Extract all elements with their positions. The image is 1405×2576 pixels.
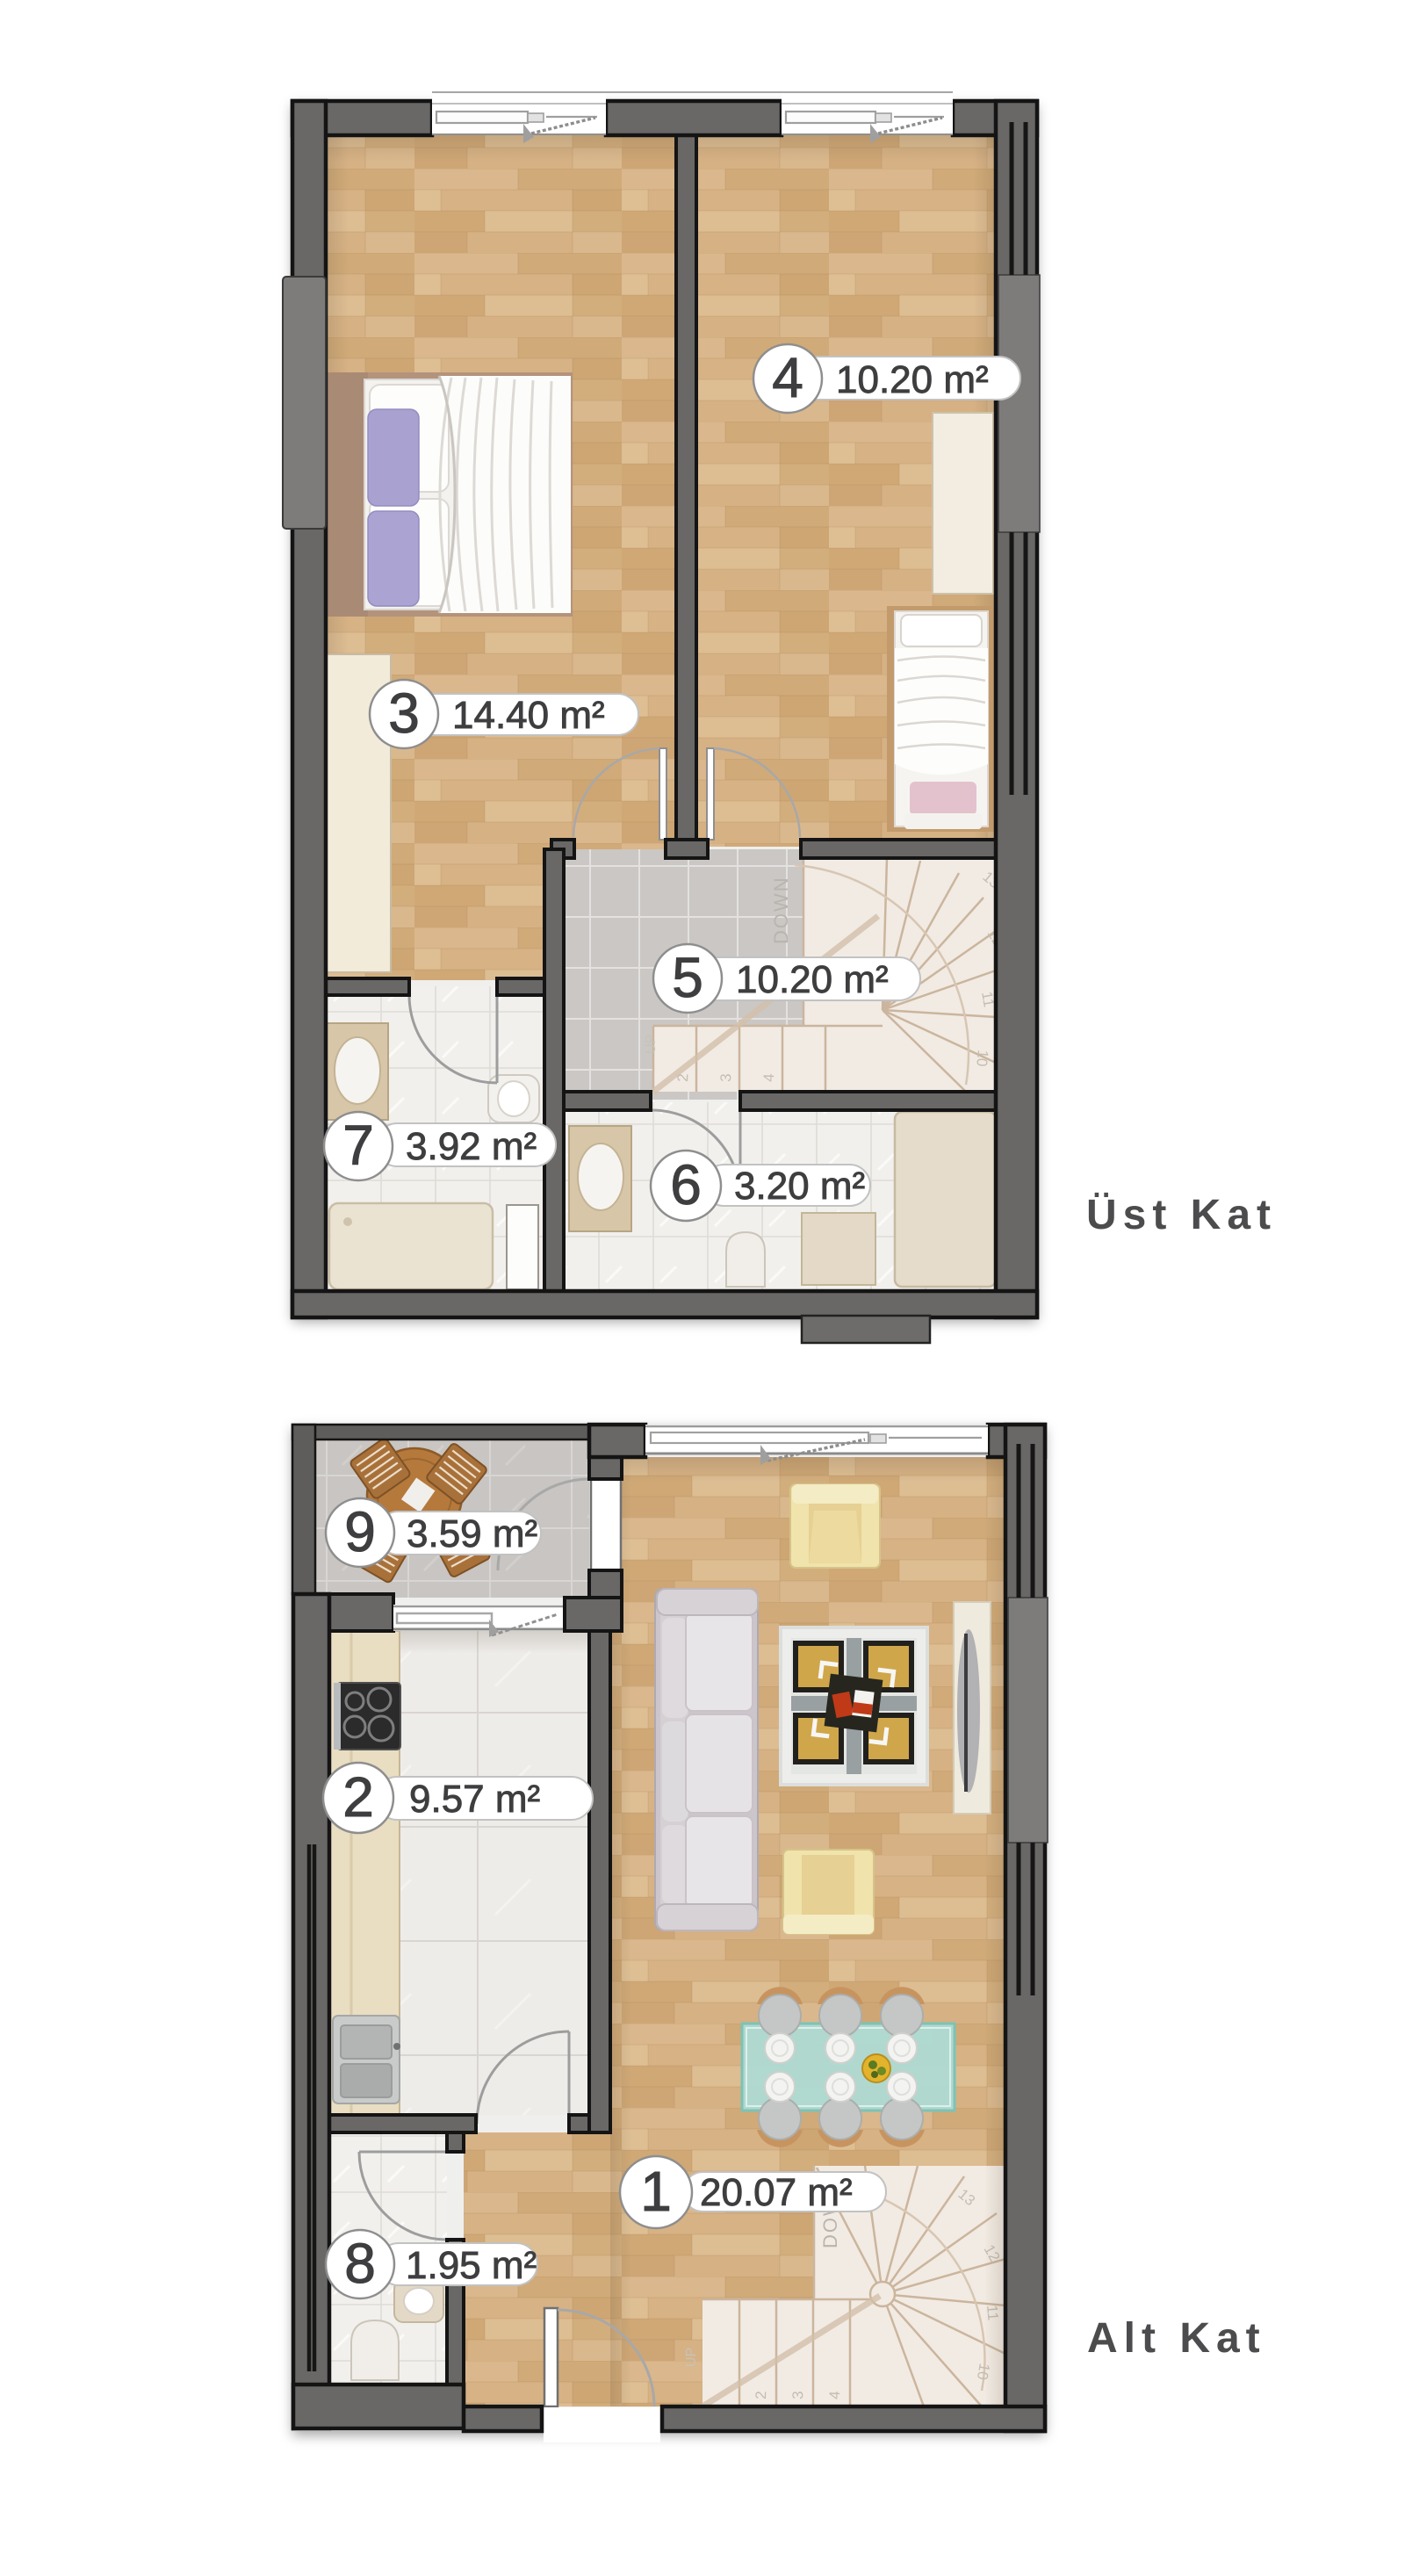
svg-text:10.20 m²: 10.20 m² [736, 958, 889, 1001]
svg-text:3: 3 [388, 682, 420, 745]
svg-text:4: 4 [772, 346, 803, 409]
svg-text:14.40 m²: 14.40 m² [452, 694, 605, 737]
svg-text:5: 5 [672, 946, 703, 1009]
svg-text:UP: UP [644, 1035, 659, 1054]
svg-text:UP: UP [684, 2348, 699, 2367]
svg-text:3.59 m²: 3.59 m² [407, 1512, 537, 1555]
svg-text:9: 9 [344, 1500, 376, 1563]
svg-text:3.92 m²: 3.92 m² [406, 1125, 537, 1168]
svg-text:6: 6 [670, 1153, 702, 1216]
svg-text:DOWN: DOWN [770, 876, 792, 944]
svg-text:7: 7 [342, 1114, 374, 1177]
svg-text:10.20 m²: 10.20 m² [836, 358, 989, 401]
svg-text:2: 2 [674, 1073, 691, 1082]
svg-text:8: 8 [344, 2232, 376, 2295]
svg-text:3: 3 [789, 2391, 806, 2399]
svg-text:1.95 m²: 1.95 m² [406, 2244, 537, 2287]
svg-text:2: 2 [753, 2391, 769, 2399]
svg-text:4: 4 [760, 1073, 777, 1082]
svg-text:10: 10 [973, 1050, 991, 1068]
svg-text:4: 4 [826, 2391, 843, 2399]
svg-text:20.07 m²: 20.07 m² [700, 2171, 853, 2214]
svg-text:3: 3 [717, 1073, 734, 1082]
svg-text:2: 2 [342, 1765, 374, 1829]
svg-text:Üst Kat: Üst Kat [1086, 1192, 1277, 1238]
svg-text:3.20 m²: 3.20 m² [734, 1165, 865, 1208]
svg-text:Alt Kat: Alt Kat [1087, 2315, 1266, 2362]
svg-text:1: 1 [640, 2160, 672, 2223]
svg-text:9.57 m²: 9.57 m² [409, 1778, 540, 1821]
